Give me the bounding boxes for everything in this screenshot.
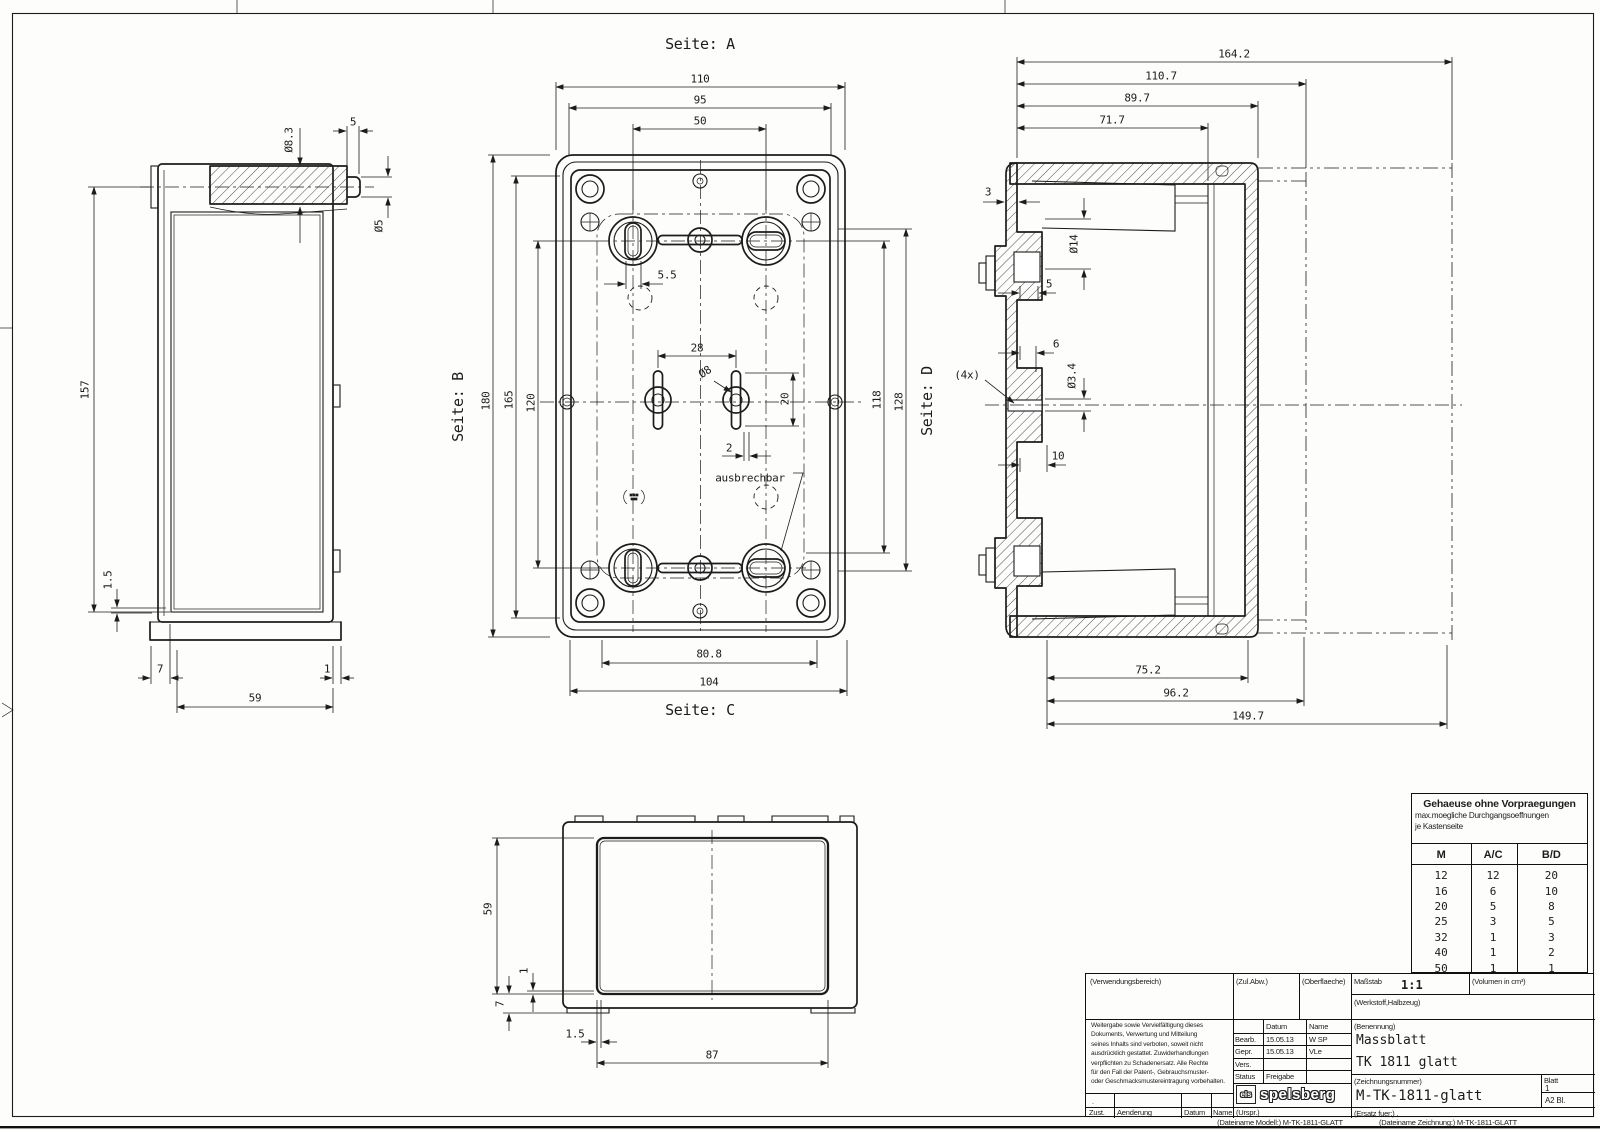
dim-5-5: 5.5 <box>658 269 677 282</box>
field-ersatz: (Ersatz fuer:) . <box>1354 1109 1398 1118</box>
value-bearb-datum: 15.05.13 <box>1266 1035 1294 1044</box>
header-name: Name <box>1309 1022 1328 1031</box>
section-view <box>979 57 1462 729</box>
view-title-b: Seite: B <box>449 372 467 442</box>
value-gepr-datum: 15.05.13 <box>1266 1047 1294 1056</box>
knockout-table-header: M A/C B/D <box>1412 845 1587 865</box>
field-massstab-label: Maßstab <box>1354 977 1382 986</box>
label-bearb: Bearb. <box>1235 1035 1256 1044</box>
dim-7-bottom: 7 <box>494 1001 507 1007</box>
dim-110: 110 <box>691 73 710 86</box>
dim-50: 50 <box>694 115 707 128</box>
view-title-c: Seite: C <box>665 701 735 719</box>
label-gepr: Gepr. <box>1235 1047 1252 1056</box>
field-zul-abw: (Zul.Abw.) <box>1236 977 1268 986</box>
dim-110-7: 110.7 <box>1145 70 1177 83</box>
bottom-view <box>492 816 857 1068</box>
dim-1-5-bottom: 1.5 <box>566 1028 585 1041</box>
dim-10: 10 <box>1052 450 1065 463</box>
knockout-table: Gehaeuse ohne Vorpraegungen max.moeglich… <box>1411 793 1588 973</box>
filename-model: (Dateiname Modell:) M-TK-1811-GLATT <box>1217 1118 1343 1127</box>
dim-75-2: 75.2 <box>1135 664 1160 677</box>
dim-71-7: 71.7 <box>1099 114 1124 127</box>
dim-59-bottom: 59 <box>482 903 495 916</box>
mold-mark <box>624 490 645 504</box>
table-row: 16610 <box>1412 883 1587 898</box>
dim-87: 87 <box>706 1049 719 1062</box>
label-4x: (4x) <box>954 369 979 382</box>
dim-164-2: 164.2 <box>1218 48 1250 61</box>
title-block: (Verwendungsbereich) (Zul.Abw.) (Oberfla… <box>1085 973 1594 1117</box>
table-row: 2058 <box>1412 899 1587 914</box>
field-verwendungsbereich: (Verwendungsbereich) <box>1090 977 1161 986</box>
dim-dia-5: Ø5 <box>373 220 386 233</box>
part-title-line2: TK 1811 glatt <box>1356 1055 1458 1070</box>
dim-104: 104 <box>700 676 719 689</box>
dim-89-7: 89.7 <box>1124 92 1149 105</box>
dim-80-8: 80.8 <box>696 648 721 661</box>
dim-180: 180 <box>480 392 493 411</box>
view-title-a: Seite: A <box>665 35 735 53</box>
table-row: 4012 <box>1412 945 1587 960</box>
field-werkstoff: (Werkstoff,Halbzeug) <box>1354 998 1420 1007</box>
dim-128: 128 <box>893 393 906 412</box>
dim-20: 20 <box>779 393 792 406</box>
sheet-format: A2 Bl. <box>1545 1096 1565 1105</box>
knockout-table-subtitle-1: max.moegliche Durchgangsoeffnungen <box>1415 811 1584 821</box>
value-status: Freigabe <box>1266 1072 1294 1081</box>
dim-1-5: 1.5 <box>102 571 115 590</box>
dim-dia-14: Ø14 <box>1068 235 1081 254</box>
col-name: Name <box>1213 1108 1232 1117</box>
dim-7: 7 <box>157 663 163 676</box>
table-row: 2535 <box>1412 914 1587 929</box>
field-benennung: (Benennung) <box>1354 1022 1395 1031</box>
dim-dia-3-4: Ø3.4 <box>1066 363 1079 388</box>
dim-dia-8-3: Ø8.3 <box>283 127 296 152</box>
dim-59: 59 <box>249 692 262 705</box>
header-datum: Datum <box>1266 1022 1287 1031</box>
table-row: 3213 <box>1412 930 1587 945</box>
dim-149-7: 149.7 <box>1232 710 1264 723</box>
dim-1: 1 <box>324 663 330 676</box>
centering-mark <box>2 703 13 717</box>
field-urspr: (Urspr.) <box>1236 1108 1259 1117</box>
field-oberflaeche: (Oberflaeche) <box>1302 977 1345 986</box>
dim-165: 165 <box>503 391 516 410</box>
dim-5-section: 5 <box>1046 278 1052 291</box>
value-bearb-name: W SP <box>1309 1035 1327 1044</box>
spelsberg-logo: els spelsberg <box>1236 1085 1335 1104</box>
dim-96-2: 96.2 <box>1163 687 1188 700</box>
col-header-bd: B/D <box>1516 849 1587 861</box>
label-vers: Vers. <box>1235 1060 1251 1069</box>
col-zust: Zust. <box>1089 1108 1105 1117</box>
dim-120: 120 <box>525 394 538 413</box>
col-datum: Datum <box>1184 1108 1205 1117</box>
field-zeichnungsnummer: (Zeichnungsnummer) <box>1354 1077 1422 1086</box>
label-status: Status <box>1235 1072 1255 1081</box>
dim-1-bottom: 1 <box>518 968 531 974</box>
drawing-number: M-TK-1811-glatt <box>1356 1088 1482 1104</box>
legal-notice: Weitergabe sowie Vervielfältigung dieses… <box>1091 1021 1231 1087</box>
filename-drawing: (Dateiname Zeichnung:) M-TK-1811-GLATT <box>1379 1118 1517 1127</box>
value-gepr-name: VLe <box>1309 1047 1322 1056</box>
col-header-m: M <box>1412 849 1470 861</box>
dim-157: 157 <box>79 381 92 400</box>
front-view <box>488 82 912 696</box>
side-view <box>88 126 392 713</box>
dim-2: 2 <box>726 442 732 455</box>
col-header-ac: A/C <box>1470 849 1515 861</box>
dim-5: 5 <box>350 116 356 129</box>
part-title-line1: Massblatt <box>1356 1033 1426 1048</box>
knockout-table-title: Gehaeuse ohne Vorpraegungen <box>1412 798 1587 810</box>
dim-118: 118 <box>871 391 884 410</box>
sheet-number: 1 <box>1545 1084 1549 1093</box>
table-row: 121220 <box>1412 868 1587 883</box>
revision-dot: . <box>1092 1097 1094 1106</box>
drawing-sheet: Seite: A Seite: B Seite: C Seite: D Ø8.3… <box>0 0 1600 1132</box>
logo-els-mark: els <box>1236 1085 1256 1104</box>
logo-wordmark: spelsberg <box>1260 1086 1335 1103</box>
field-volumen: (Volumen in cm³) <box>1472 977 1525 986</box>
label-ausbrechbar: ausbrechbar <box>715 472 785 485</box>
scale-value: 1:1 <box>1401 978 1423 992</box>
dim-3: 3 <box>985 186 991 199</box>
dim-6: 6 <box>1053 338 1059 351</box>
drawing-canvas <box>0 0 1600 1132</box>
dim-28: 28 <box>691 342 704 355</box>
view-title-d: Seite: D <box>918 366 936 436</box>
dim-95: 95 <box>694 94 707 107</box>
col-aenderung: Aenderung <box>1117 1108 1152 1117</box>
knockout-table-subtitle-2: je Kastenseite <box>1415 822 1584 832</box>
